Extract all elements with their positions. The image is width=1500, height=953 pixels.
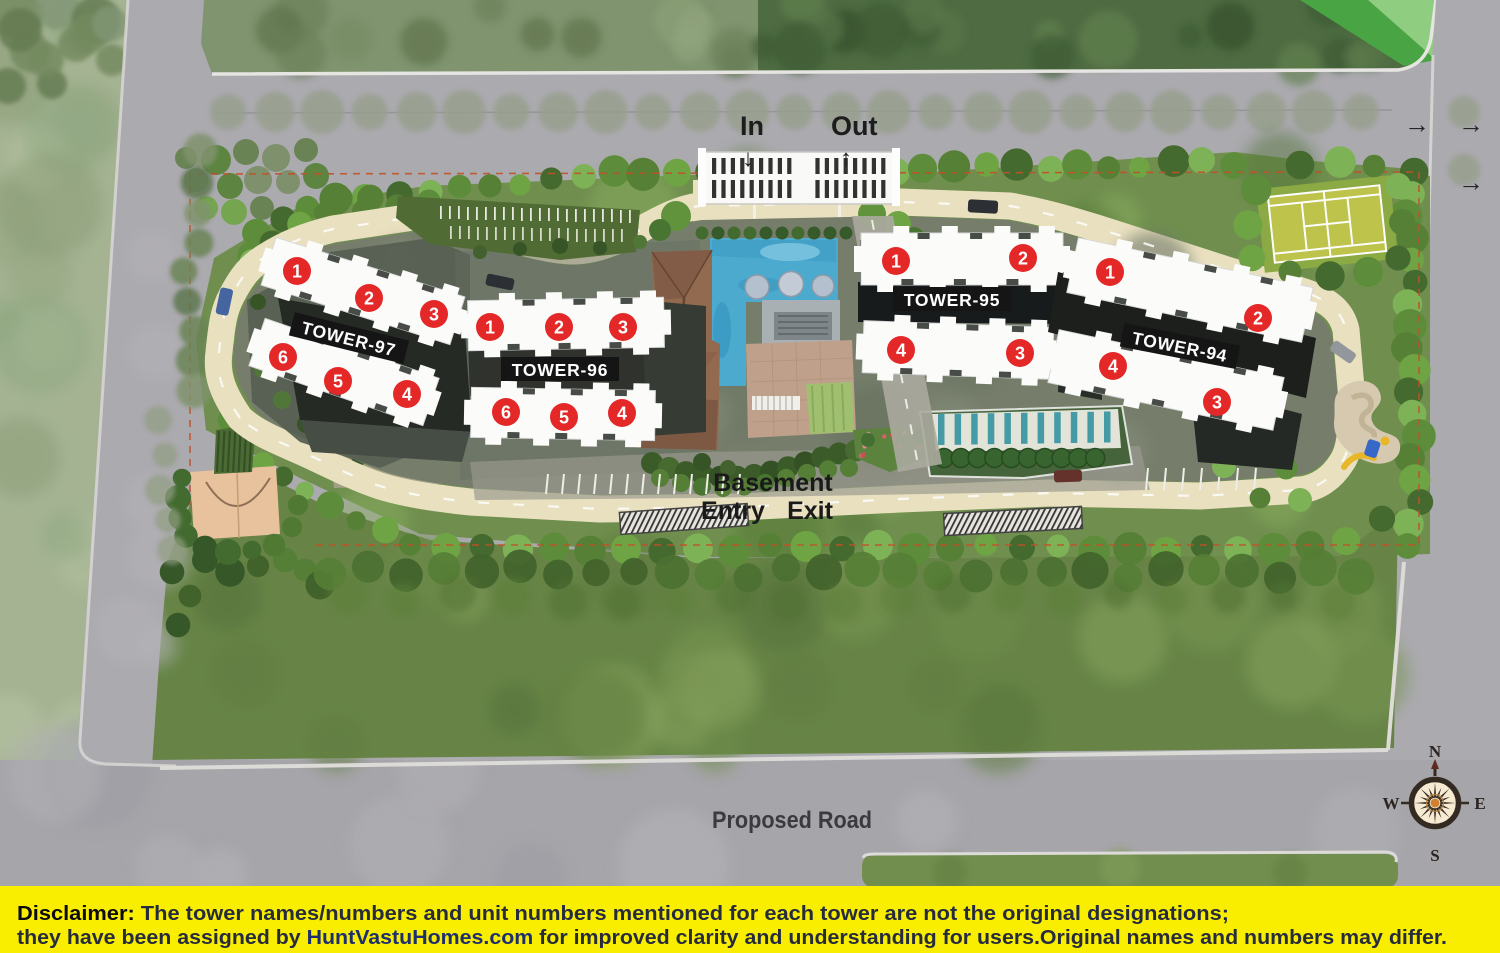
svg-text:S: S [1430, 846, 1439, 865]
svg-text:W: W [1383, 794, 1400, 813]
svg-text:N: N [1429, 742, 1442, 761]
svg-text:E: E [1474, 794, 1485, 813]
svg-text:Disclaimer: The tower names/nu: Disclaimer: The tower names/numbers and … [17, 902, 1229, 925]
svg-text:they have been assigned by Hun: they have been assigned by HuntVastuHome… [17, 926, 1447, 949]
